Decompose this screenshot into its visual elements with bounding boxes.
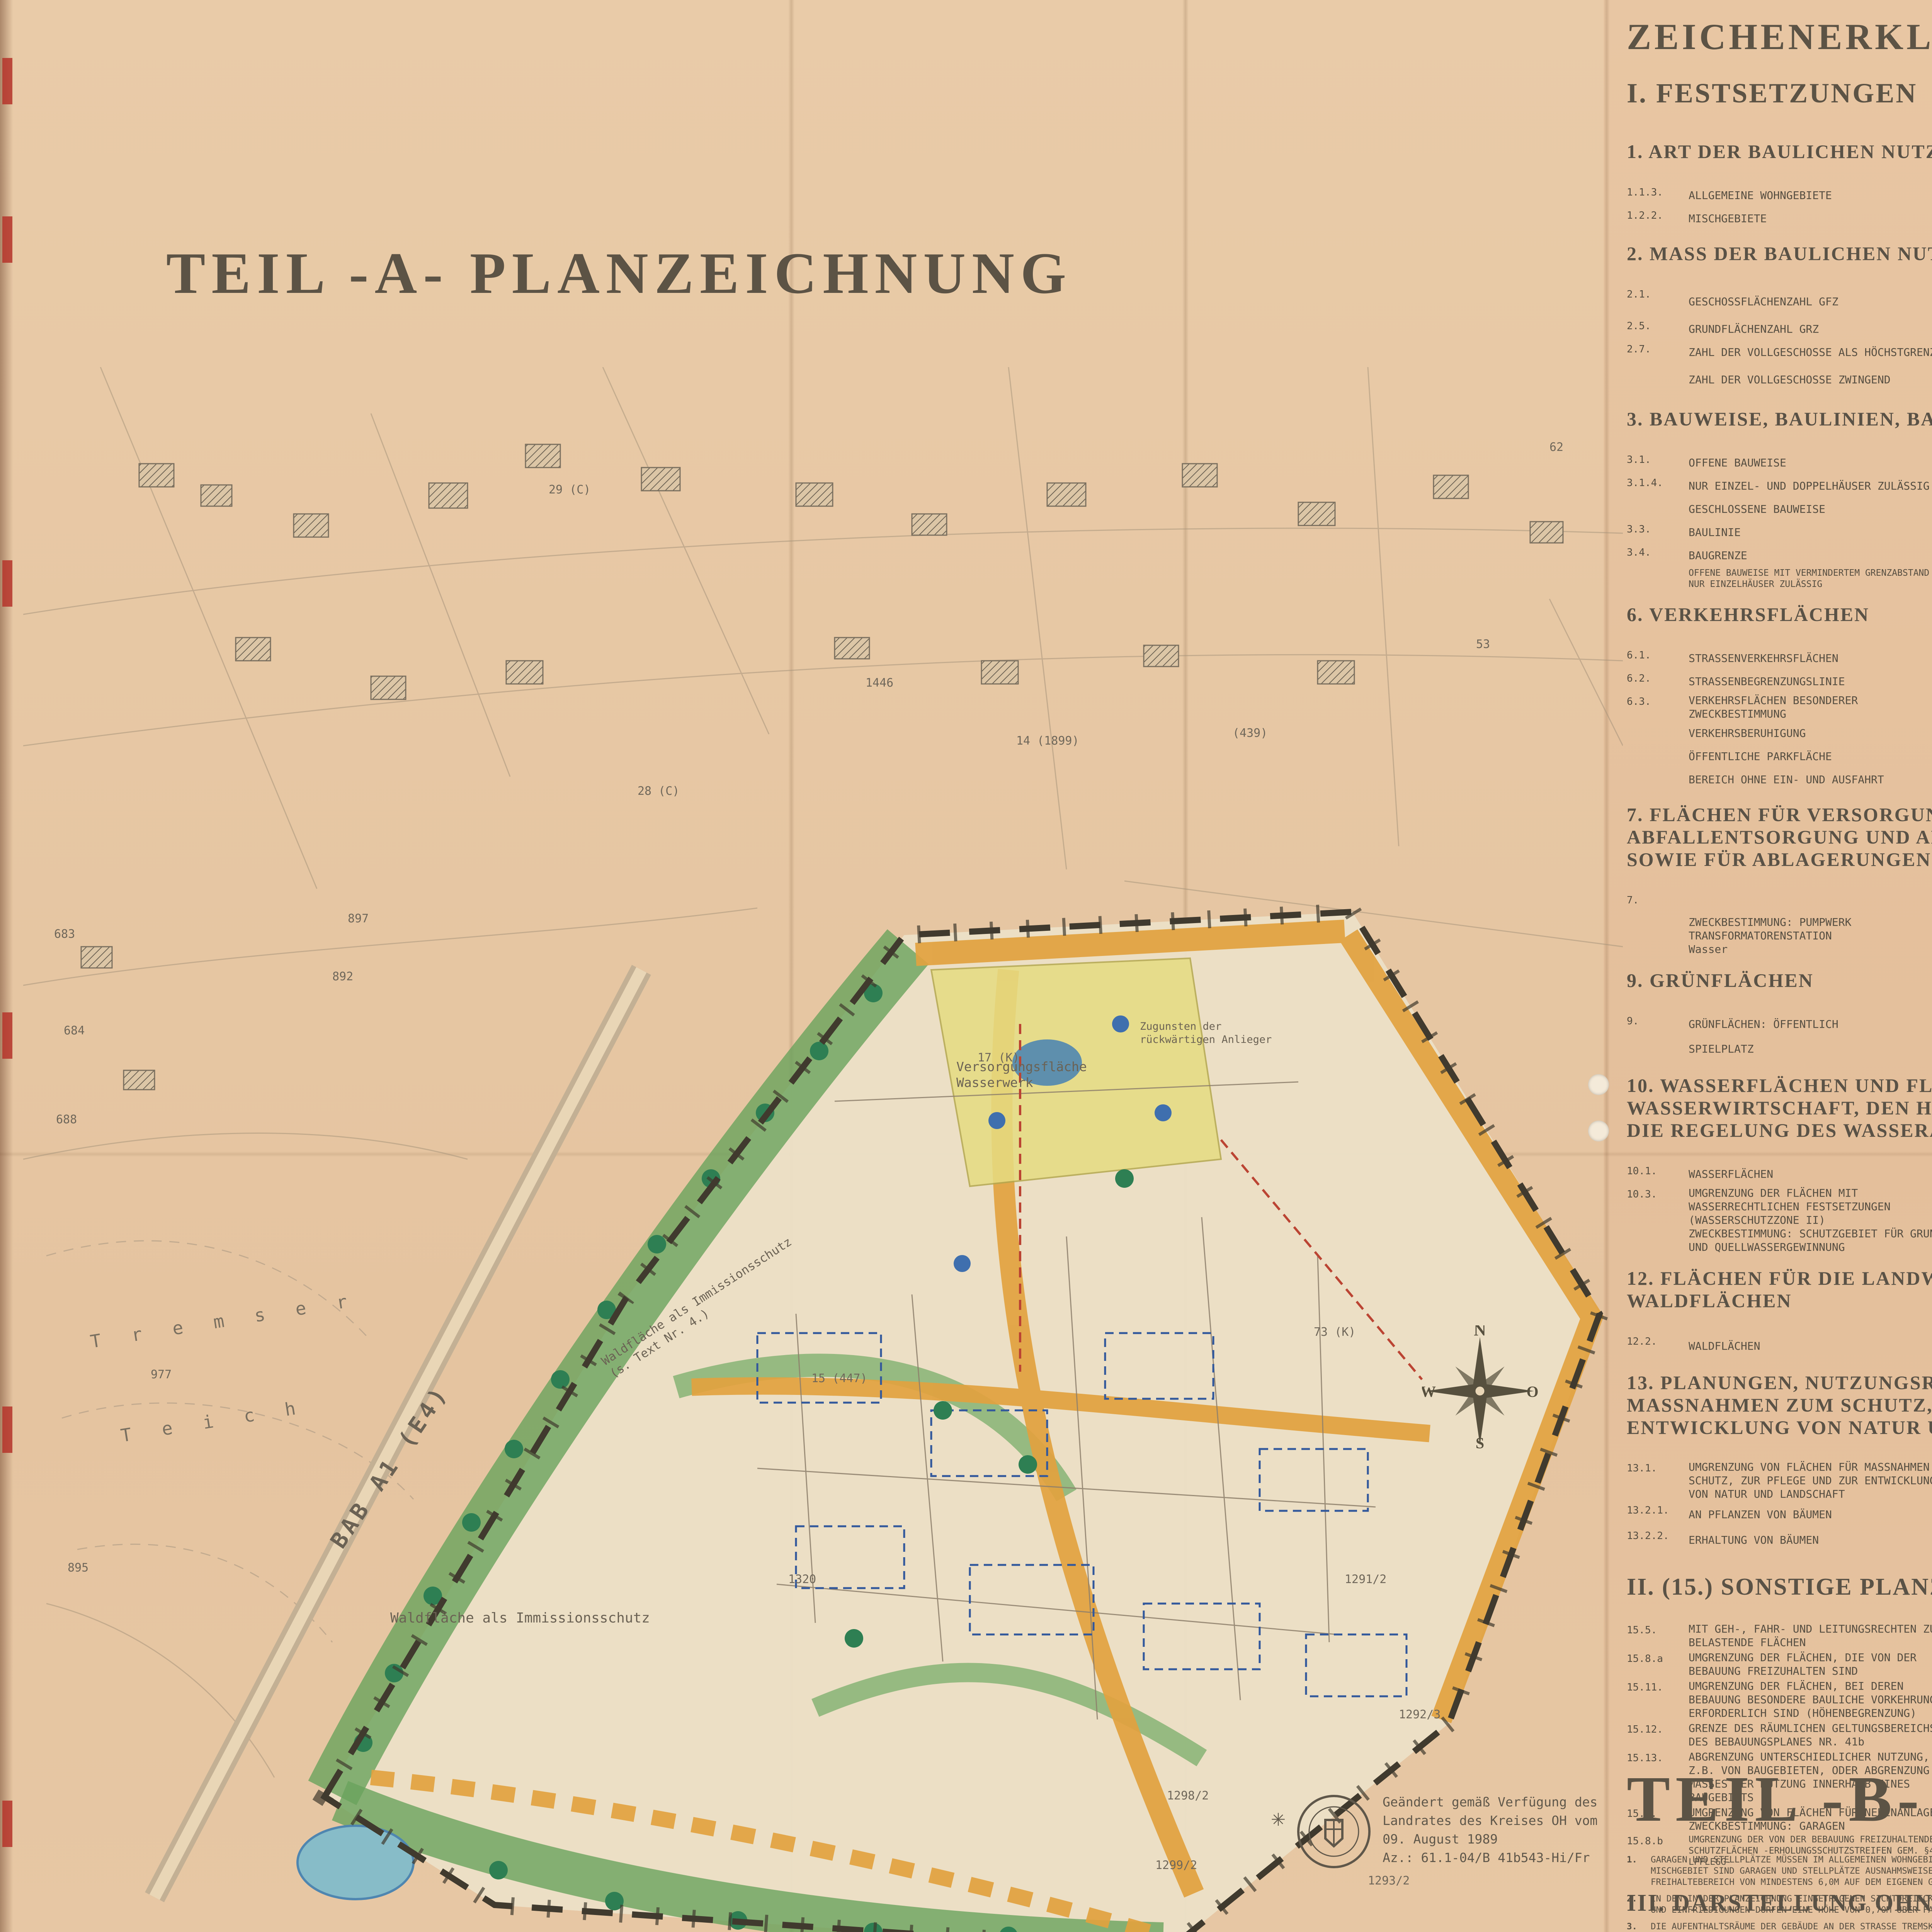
map-label-waldflaeche: Waldfläche als Immissionsschutz xyxy=(390,1609,650,1627)
legend-row: OFFENE BAUWEISE MIT VERMINDERTEM GRENZAB… xyxy=(1627,568,1932,590)
legend-row: 1.1.3. ALLGEMEINE WOHNGEBIETE WA 4 xyxy=(1627,184,1932,206)
legend-symbol-icon xyxy=(1627,1141,1665,1157)
parcel-number: 684 xyxy=(64,1024,85,1037)
legend-item-number: 3.1.4. xyxy=(1627,475,1685,490)
parcel-number: 28 (C) xyxy=(638,784,679,798)
legend-row: 3.4. BAUGRENZE 23 (3) xyxy=(1627,544,1932,566)
legend-item-label: GESCHLOSSENE BAUWEISE xyxy=(1689,502,1932,516)
legend-item-number xyxy=(1627,722,1685,724)
legend-row: 3.1. OFFENE BAUWEISE o 22 (2) xyxy=(1627,452,1932,473)
legend-row: 13. PLANUNGEN, NUTZUNGSREGELUNGEN UND MA… xyxy=(1627,1371,1932,1454)
legend-item-label: 12. FLÄCHEN FÜR DIE LANDWIRTSCHAFT UND W… xyxy=(1627,1267,1932,1311)
legend-item-label: ZWECKBESTIMMUNG: PUMPWERK TRANSFORMATORE… xyxy=(1689,915,1932,956)
parcel-number: 53 xyxy=(1476,638,1490,651)
svg-text:O: O xyxy=(1526,1383,1538,1400)
legend-item-label: STRASSENBEGRENZUNGSLINIE xyxy=(1689,675,1932,688)
legend-title: ZEICHENERKLÄRUNG xyxy=(1627,15,1932,58)
legend-row: 2.1. GESCHOSSFLÄCHENZAHL GFZ 0,3 20 (1) xyxy=(1627,286,1932,316)
paragraph-number: 3. xyxy=(1627,1921,1647,1932)
paragraph-text: IN DEN IN DER PLANZEICHNUNG EINGETRAGENE… xyxy=(1651,1893,1932,1916)
legend-item-label: OFFENE BAUWEISE xyxy=(1689,456,1932,469)
legend-item-label: ERHALTUNG VON BÄUMEN xyxy=(1689,1533,1932,1547)
legend-row: 3. BAUWEISE, BAULINIEN, BAUGRENZEN xyxy=(1627,408,1932,446)
amendment-stamp: ✳ Geändert gemäß Verfügung des Landrates… xyxy=(1271,1793,1597,1870)
teil-b-paragraph: 2. IN DEN IN DER PLANZEICHNUNG EINGETRAG… xyxy=(1627,1893,1932,1916)
legend-item-number: 7. xyxy=(1627,892,1685,907)
legend-item-number: 13.1. xyxy=(1627,1460,1685,1475)
legend-row: 1. ART DER BAULICHEN NUTZUNG xyxy=(1627,140,1932,178)
legend-item-label: 10. WASSERFLÄCHEN UND FLÄCHEN FÜR DIE WA… xyxy=(1627,1075,1932,1141)
legend-item-label: BAUGRENZE xyxy=(1689,549,1932,562)
legend-item-label: MISCHGEBIETE xyxy=(1689,212,1932,225)
legend-row: 9. GRÜNFLÄCHEN: ÖFFENTLICH 9 (1) 15 xyxy=(1627,1013,1932,1035)
parcel-number: 1298/2 xyxy=(1167,1789,1209,1803)
legend-symbol-icon xyxy=(1627,1312,1665,1327)
legend-row: 6.1. STRASSENVERKEHRSFLÄCHEN 9 (1) 11 xyxy=(1627,647,1932,669)
legend-row: GESCHLOSSENE BAUWEISE g 22 (3) xyxy=(1627,498,1932,520)
legend-row: ÖFFENTLICHE PARKFLÄCHE P 9 (1) 11 xyxy=(1627,745,1932,767)
legend-item-number: 15.5. xyxy=(1627,1622,1685,1637)
legend-row: 12. FLÄCHEN FÜR DIE LANDWIRTSCHAFT UND W… xyxy=(1627,1267,1932,1327)
paragraph-number: 2. xyxy=(1627,1893,1647,1916)
teil-b-text: TEIL -B- TEXT 1. GARAGEN UND STELLPLÄTZE… xyxy=(1627,1762,1932,1932)
legend-item-number: 15.11. xyxy=(1627,1679,1685,1694)
legend-item-number: 6.2. xyxy=(1627,670,1685,685)
parcel-number: 977 xyxy=(151,1368,172,1381)
parcel-number: 17 (K) xyxy=(978,1051,1019,1065)
legend-item-label: OFFENE BAUWEISE MIT VERMINDERTEM GRENZAB… xyxy=(1689,568,1932,590)
legend-item-number: 15.12. xyxy=(1627,1721,1685,1736)
legend-item-number: 15.8.a xyxy=(1627,1651,1685,1666)
legend-item-number: 13.2.2. xyxy=(1627,1528,1685,1543)
legend-row: SPIELPLATZ ⊔ 9 (1) 15 xyxy=(1627,1036,1932,1061)
legend-item-number: 9. xyxy=(1627,1013,1685,1028)
scanned-bebauungsplan-sheet: TEIL -A- PLANZEICHNUNG xyxy=(0,0,1932,1932)
legend-row: 6.2. STRASSENBEGRENZUNGSLINIE 9 (1) 11 xyxy=(1627,670,1932,692)
legend-item-label: NUR EINZEL- UND DOPPELHÄUSER ZULÄSSIG xyxy=(1689,479,1932,493)
paragraph-text: DIE AUFENTHALTSRÄUME DER GEBÄUDE AN DER … xyxy=(1651,1921,1932,1932)
legend-item-number: 6.1. xyxy=(1627,647,1685,662)
legend-item-number: 3.3. xyxy=(1627,521,1685,536)
legend-item-label: UMGRENZUNG DER FLÄCHEN, DIE VON DER BEBA… xyxy=(1689,1651,1932,1678)
teil-b-paragraph: 3. DIE AUFENTHALTSRÄUME DER GEBÄUDE AN D… xyxy=(1627,1921,1932,1932)
parcel-number: 1292/3 xyxy=(1399,1708,1440,1721)
legend-item-number: 2.5. xyxy=(1627,318,1685,333)
legend-row: 6. VERKEHRSFLÄCHEN xyxy=(1627,603,1932,641)
map-label-wasserwerk: Versorgungsfläche Wasserwerk xyxy=(956,1059,1087,1091)
teil-b-paragraph: 1. GARAGEN UND STELLPLÄTZE MÜSSEN IM ALL… xyxy=(1627,1854,1932,1888)
parcel-number: 688 xyxy=(56,1113,77,1126)
legend-item-number xyxy=(1627,745,1685,747)
legend-row: 3.1.4. NUR EINZEL- UND DOPPELHÄUSER ZULÄ… xyxy=(1627,475,1932,497)
legend-row: 15.5. MIT GEH-, FAHR- UND LEITUNGSRECHTE… xyxy=(1627,1622,1932,1649)
scan-artifact xyxy=(2,1801,12,1847)
plan-drawing: T r e m s e r T e i c h BAB A1 (E4) Wald… xyxy=(23,367,1623,1932)
legend-item-label: ÖFFENTLICHE PARKFLÄCHE xyxy=(1689,750,1932,763)
legend-item-number xyxy=(1627,568,1685,569)
legend-row: 13.2.2. ERHALTUNG VON BÄUMEN 9 (1) 25b xyxy=(1627,1528,1932,1552)
svg-text:N: N xyxy=(1474,1325,1486,1339)
parcel-number: 1293/2 xyxy=(1368,1874,1410,1888)
legend-item-label: UMGRENZUNG DER FLÄCHEN, BEI DEREN BEBAUU… xyxy=(1689,1679,1932,1720)
legend-row: 10.1. WASSERFLÄCHEN 9 (1) 16 xyxy=(1627,1163,1932,1185)
map-label-zugunsten: Zugunsten der rückwärtigen Anlieger xyxy=(1140,1020,1272,1046)
city-seal-icon xyxy=(1295,1793,1372,1870)
legend-row: 7. 9 (1) 12 xyxy=(1627,892,1932,914)
parcel-number: 895 xyxy=(68,1561,88,1575)
legend-item-label: GESCHOSSFLÄCHENZAHL GFZ xyxy=(1689,295,1932,308)
parcel-number: 29 (C) xyxy=(549,483,590,497)
scan-artifact xyxy=(2,216,12,263)
parcel-number: 892 xyxy=(332,970,353,983)
legend-row: 2. MASS DER BAULICHEN NUTZUNG xyxy=(1627,242,1932,280)
legend-item-label: 13. PLANUNGEN, NUTZUNGSREGELUNGEN UND MA… xyxy=(1627,1372,1932,1438)
legend-item-label: 3. BAUWEISE, BAULINIEN, BAUGRENZEN xyxy=(1627,408,1932,430)
legend-item-label: STRASSENVERKEHRSFLÄCHEN xyxy=(1689,651,1932,665)
legend-item-label: 6. VERKEHRSFLÄCHEN xyxy=(1627,604,1869,625)
legend-item-label: SPIELPLATZ xyxy=(1689,1042,1932,1056)
legend-item-number xyxy=(1627,915,1685,917)
legend-row: 13.1. UMGRENZUNG VON FLÄCHEN FÜR MASSNAH… xyxy=(1627,1460,1932,1501)
legend-symbol-icon xyxy=(1627,265,1665,280)
legend-row: 7. FLÄCHEN FÜR VERSORGUNGSANLAGEN, FÜR D… xyxy=(1627,803,1932,886)
legend-row: ZWECKBESTIMMUNG: PUMPWERK TRANSFORMATORE… xyxy=(1627,915,1932,956)
legend-item-label: AN PFLANZEN VON BÄUMEN xyxy=(1689,1508,1932,1521)
parcel-number: 897 xyxy=(348,912,369,925)
legend-row: 15.8.a UMGRENZUNG DER FLÄCHEN, DIE VON D… xyxy=(1627,1651,1932,1678)
legend-item-number xyxy=(1627,498,1685,500)
parcel-number: 1320 xyxy=(788,1573,816,1586)
legend-item-label: VERKEHRSBERUHIGUNG xyxy=(1689,726,1932,740)
legend-item-number xyxy=(1627,1036,1685,1038)
legend-item-label: WASSERFLÄCHEN xyxy=(1689,1167,1932,1181)
legend-item-number: 3.1. xyxy=(1627,452,1685,467)
legend-item-number: 1.1.3. xyxy=(1627,184,1685,199)
legend-item-number: 3.4. xyxy=(1627,544,1685,560)
legend-item-number: 1.2.2. xyxy=(1627,207,1685,223)
north-arrow-icon: N W O S xyxy=(1422,1325,1538,1449)
parcel-number: 14 (1899) xyxy=(1016,734,1079,748)
scan-artifact xyxy=(2,560,12,607)
legend-row: 12.2. WALDFLÄCHEN 9 (1) 18 xyxy=(1627,1333,1932,1358)
legend-item-number: 10.3. xyxy=(1627,1186,1685,1201)
parcel-number: 1291/2 xyxy=(1345,1573,1386,1586)
legend-row: 15.11. UMGRENZUNG DER FLÄCHEN, BEI DEREN… xyxy=(1627,1679,1932,1720)
parcel-number: 15 (447) xyxy=(811,1372,867,1385)
legend-item-label: 2. MASS DER BAULICHEN NUTZUNG xyxy=(1627,243,1932,264)
legend-row: 3.3. BAULINIE 23 (2) xyxy=(1627,521,1932,543)
legend-item-number: 6.3. xyxy=(1627,694,1685,709)
legend-item-label: UMGRENZUNG VON FLÄCHEN FÜR MASSNAHMEN ZU… xyxy=(1689,1460,1932,1501)
parcel-number: 1299/2 xyxy=(1155,1859,1197,1872)
teil-b-items: 1. GARAGEN UND STELLPLÄTZE MÜSSEN IM ALL… xyxy=(1627,1854,1932,1932)
legend-row: 10. WASSERFLÄCHEN UND FLÄCHEN FÜR DIE WA… xyxy=(1627,1074,1932,1157)
legend-rows: 1. ART DER BAULICHEN NUTZUNG 1.1.3. ALLG… xyxy=(1627,140,1932,1932)
plan-map-graphic xyxy=(23,367,1623,1932)
parcel-number: 73 (K) xyxy=(1314,1325,1355,1339)
legend-row: BEREICH OHNE EIN- UND AUSFAHRT ◖ ◖ ◖ 9 (… xyxy=(1627,769,1932,790)
scan-edge xyxy=(0,0,13,1932)
legend-item-number: 12.2. xyxy=(1627,1333,1685,1349)
scan-artifact xyxy=(2,1406,12,1453)
legend-column-headers: I. FESTSETZUNGEN PLANZ. BAUGB BAUNVO xyxy=(1627,77,1932,109)
legend-section-i: I. FESTSETZUNGEN xyxy=(1627,77,1932,109)
parcel-number: (439) xyxy=(1233,726,1267,740)
legend-item-label: GRUNDFLÄCHENZAHL GRZ xyxy=(1689,322,1932,336)
legend-row: II. (15.) SONSTIGE PLANZEICHEN xyxy=(1627,1573,1932,1616)
asterisk-mark: ✳ xyxy=(1271,1804,1285,1832)
legend-row: VERKEHRSBERUHIGUNG 9 (1) 11 xyxy=(1627,722,1932,744)
teil-a-title: TEIL -A- PLANZEICHNUNG xyxy=(166,240,1072,307)
legend-symbol-icon xyxy=(1627,163,1665,178)
legend-symbol-icon xyxy=(1627,1600,1665,1616)
legend-item-number: 2.7. xyxy=(1627,341,1685,356)
parcel-number: 62 xyxy=(1549,440,1563,454)
legend-item-number xyxy=(1627,364,1685,366)
svg-text:S: S xyxy=(1476,1434,1484,1449)
legend-item-number: 13.2.1. xyxy=(1627,1502,1685,1517)
paragraph-number: 1. xyxy=(1627,1854,1647,1888)
legend-row: 2.5. GRUNDFLÄCHENZAHL GRZ 0,35 20 (1) xyxy=(1627,318,1932,340)
legend-row: 10.3. UMGRENZUNG DER FLÄCHEN MIT WASSERR… xyxy=(1627,1186,1932,1254)
legend-item-number xyxy=(1627,769,1685,770)
legend-item-label: ZAHL DER VOLLGESCHOSSE ZWINGEND xyxy=(1689,373,1932,386)
parcel-number: 683 xyxy=(54,927,75,941)
legend-item-label: ZAHL DER VOLLGESCHOSSE ALS HÖCHSTGRENZE xyxy=(1689,345,1932,359)
legend-item-label: BEREICH OHNE EIN- UND AUSFAHRT xyxy=(1689,773,1932,786)
legend-item-label: II. (15.) SONSTIGE PLANZEICHEN xyxy=(1627,1574,1932,1600)
legend-symbol-icon xyxy=(1627,430,1665,446)
legend-item-label: MIT GEH-, FAHR- UND LEITUNGSRECHTEN ZU B… xyxy=(1689,1622,1932,1649)
legend-symbol-icon xyxy=(1627,992,1665,1007)
legend-row: ZAHL DER VOLLGESCHOSSE ZWINGEND II 18 xyxy=(1627,364,1932,395)
legend-item-label: WALDFLÄCHEN xyxy=(1689,1339,1932,1353)
legend-item-label: BAULINIE xyxy=(1689,526,1932,539)
legend-item-label: GRÜNFLÄCHEN: ÖFFENTLICH xyxy=(1689,1017,1932,1031)
scan-artifact xyxy=(2,58,12,104)
legend-symbol-icon xyxy=(1627,626,1665,641)
legend-item-label: 7. FLÄCHEN FÜR VERSORGUNGSANLAGEN, FÜR D… xyxy=(1627,804,1932,870)
legend: ZEICHENERKLÄRUNG I. FESTSETZUNGEN PLANZ.… xyxy=(1627,15,1932,1932)
legend-item-label: GRENZE DES RÄUMLICHEN GELTUNGSBEREICHS D… xyxy=(1689,1721,1932,1748)
legend-item-label: 1. ART DER BAULICHEN NUTZUNG xyxy=(1627,141,1932,162)
legend-item-number: 10.1. xyxy=(1627,1163,1685,1178)
legend-item-label: 9. GRÜNFLÄCHEN xyxy=(1627,969,1814,991)
legend-item-label: ALLGEMEINE WOHNGEBIETE xyxy=(1689,189,1932,202)
legend-row: 15.12. GRENZE DES RÄUMLICHEN GELTUNGSBER… xyxy=(1627,1721,1932,1748)
legend-row: 6.3. VERKEHRSFLÄCHEN BESONDERER ZWECKBES… xyxy=(1627,694,1932,721)
legend-symbol-icon xyxy=(1627,1439,1665,1454)
paragraph-text: GARAGEN UND STELLPLÄTZE MÜSSEN IM ALLGEM… xyxy=(1651,1854,1932,1888)
legend-paragraph-marks: § § xyxy=(1627,112,1932,127)
legend-item-number: 2.1. xyxy=(1627,286,1685,301)
legend-row: 13.2.1. AN PFLANZEN VON BÄUMEN 9 (1) 25a xyxy=(1627,1502,1932,1526)
svg-text:W: W xyxy=(1422,1383,1436,1400)
legend-item-label: UMGRENZUNG DER FLÄCHEN MIT WASSERRECHTLI… xyxy=(1689,1186,1932,1254)
amendment-stamp-text: Geändert gemäß Verfügung des Landrates d… xyxy=(1383,1793,1597,1867)
legend-row: 2.7. ZAHL DER VOLLGESCHOSSE ALS HÖCHSTGR… xyxy=(1627,341,1932,363)
scan-artifact xyxy=(2,1012,12,1059)
legend-row: 9. GRÜNFLÄCHEN xyxy=(1627,969,1932,1007)
teil-b-title: TEIL -B- TEXT xyxy=(1627,1762,1932,1837)
legend-symbol-icon xyxy=(1627,871,1665,886)
legend-item-label: VERKEHRSFLÄCHEN BESONDERER ZWECKBESTIMMU… xyxy=(1689,694,1932,721)
parcel-number: 1446 xyxy=(866,676,893,690)
legend-row: 1.2.2. MISCHGEBIETE MI 6 xyxy=(1627,207,1932,229)
